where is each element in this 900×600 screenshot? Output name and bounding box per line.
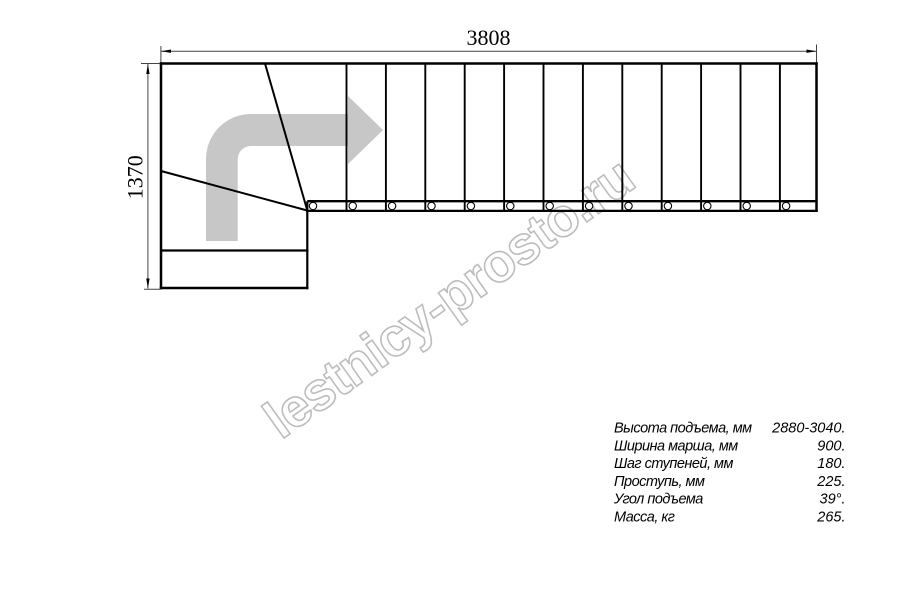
svg-text:39°.: 39°. xyxy=(820,492,846,508)
svg-text:2880-3040.: 2880-3040. xyxy=(771,421,845,437)
svg-text:Ширина марша, мм: Ширина марша, мм xyxy=(614,438,738,454)
svg-text:Угол подъема: Угол подъема xyxy=(613,492,703,508)
svg-text:Проступь, мм: Проступь, мм xyxy=(614,474,705,490)
svg-text:265.: 265. xyxy=(816,509,845,525)
svg-text:Высота подъема, мм: Высота подъема, мм xyxy=(614,421,752,437)
svg-text:900.: 900. xyxy=(817,438,845,454)
svg-text:225.: 225. xyxy=(816,474,845,490)
svg-text:Масса, кг: Масса, кг xyxy=(614,509,675,525)
svg-text:Шаг ступеней, мм: Шаг ступеней, мм xyxy=(614,456,733,472)
svg-text:180.: 180. xyxy=(817,456,845,472)
svg-text:3808: 3808 xyxy=(467,25,511,50)
svg-text:1370: 1370 xyxy=(122,155,147,199)
